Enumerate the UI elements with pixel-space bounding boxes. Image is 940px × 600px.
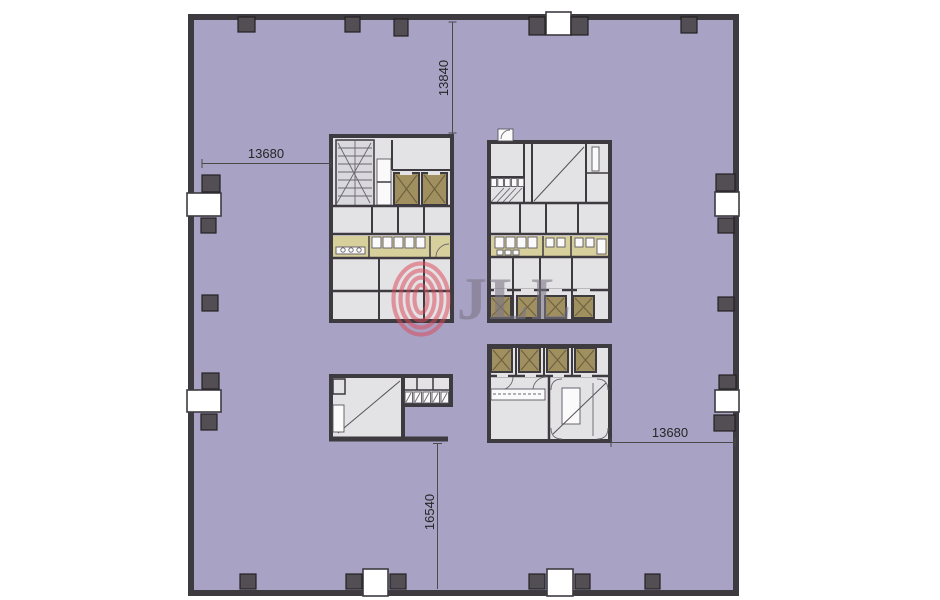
dimension-label-bottom: 16540 [422, 494, 437, 530]
floorplan-drawing: 13840 13680 13680 16540 JLL [0, 0, 940, 600]
dimension-label-left: 13680 [248, 146, 284, 161]
floorplan-page: 13840 13680 13680 16540 JLL [0, 0, 940, 600]
jll-logo-text: JLL [457, 266, 573, 332]
dimension-label-top: 13840 [436, 60, 451, 96]
stair-core-shaft [562, 388, 580, 424]
dimension-label-right: 13680 [652, 425, 688, 440]
core-block-bottom-right [489, 346, 610, 441]
